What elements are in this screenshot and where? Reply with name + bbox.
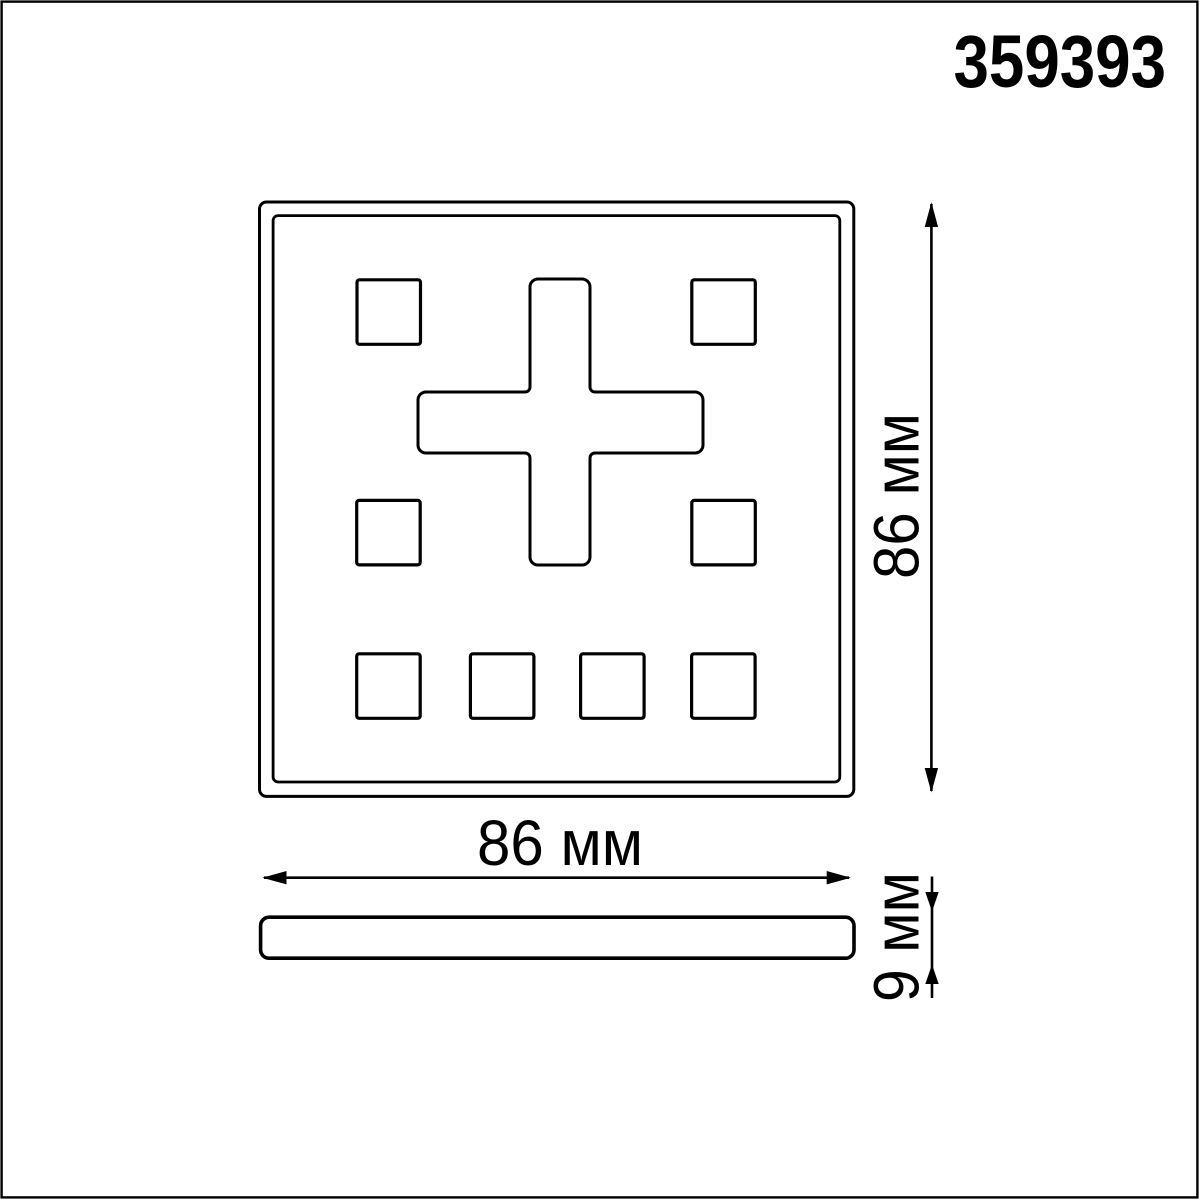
svg-text:86 мм: 86 мм <box>477 807 643 879</box>
svg-text:86 мм: 86 мм <box>861 413 933 579</box>
svg-text:359393: 359393 <box>954 20 1167 103</box>
svg-text:9 мм: 9 мм <box>861 872 933 1002</box>
